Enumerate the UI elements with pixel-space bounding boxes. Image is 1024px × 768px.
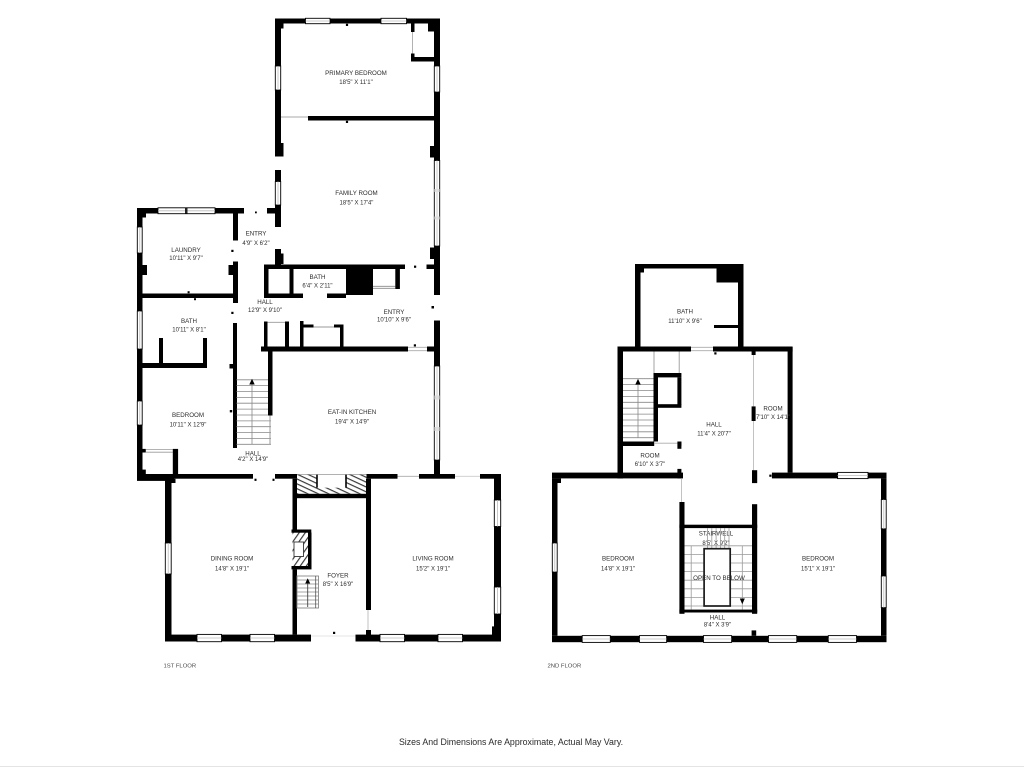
svg-text:HALL: HALL <box>706 422 722 429</box>
svg-text:BATH: BATH <box>181 318 197 325</box>
svg-text:4'9" X 6'2": 4'9" X 6'2" <box>242 241 269 247</box>
svg-text:11'4" X 20'7": 11'4" X 20'7" <box>697 431 730 437</box>
svg-text:FOYER: FOYER <box>327 573 349 580</box>
svg-text:PRIMARY BEDROOM: PRIMARY BEDROOM <box>325 70 387 77</box>
svg-text:ENTRY: ENTRY <box>246 231 267 238</box>
svg-text:18'5" X 17'4": 18'5" X 17'4" <box>340 200 374 206</box>
svg-text:ROOM: ROOM <box>763 406 782 413</box>
svg-text:HALL: HALL <box>257 299 273 306</box>
svg-text:10'10" X 9'6": 10'10" X 9'6" <box>377 317 411 323</box>
svg-text:LIVING ROOM: LIVING ROOM <box>412 556 453 563</box>
svg-text:1ST FLOOR: 1ST FLOOR <box>164 664 197 670</box>
svg-text:11'10" X 9'6": 11'10" X 9'6" <box>668 319 701 325</box>
svg-text:8'5" X 16'9": 8'5" X 16'9" <box>323 582 354 588</box>
svg-text:14'8" X 19'1": 14'8" X 19'1" <box>601 567 635 573</box>
svg-text:OPEN TO BELOW: OPEN TO BELOW <box>693 575 745 582</box>
svg-text:6'10" X 3'7": 6'10" X 3'7" <box>635 462 666 468</box>
svg-text:12'9" X 9'10": 12'9" X 9'10" <box>248 308 282 314</box>
svg-text:7'10" X 14'1": 7'10" X 14'1" <box>756 415 790 421</box>
svg-text:2ND FLOOR: 2ND FLOOR <box>548 664 582 670</box>
svg-text:14'8" X 19'1": 14'8" X 19'1" <box>215 567 249 573</box>
svg-text:8'4" X 3'9": 8'4" X 3'9" <box>704 623 731 629</box>
svg-text:18'5" X 11'1": 18'5" X 11'1" <box>339 80 372 86</box>
svg-text:10'11" X 8'1": 10'11" X 8'1" <box>172 328 205 334</box>
svg-text:ROOM: ROOM <box>640 453 659 460</box>
svg-text:15'1" X 19'1": 15'1" X 19'1" <box>801 567 835 573</box>
svg-text:LAUNDRY: LAUNDRY <box>171 247 200 254</box>
svg-text:DINING ROOM: DINING ROOM <box>211 556 254 563</box>
svg-text:Sizes And Dimensions Are Appro: Sizes And Dimensions Are Approximate, Ac… <box>399 737 623 747</box>
svg-text:FAMILY ROOM: FAMILY ROOM <box>335 190 377 197</box>
svg-text:4'2" X 14'9": 4'2" X 14'9" <box>238 457 269 463</box>
svg-text:19'4" X 14'9": 19'4" X 14'9" <box>335 420 369 426</box>
svg-text:HALL: HALL <box>710 615 726 622</box>
svg-text:6'4" X 2'11": 6'4" X 2'11" <box>302 283 332 289</box>
svg-text:10'11" X 12'9": 10'11" X 12'9" <box>170 423 207 429</box>
svg-text:BEDROOM: BEDROOM <box>602 556 634 563</box>
svg-text:BATH: BATH <box>309 274 325 281</box>
svg-text:10'11" X 9'7": 10'11" X 9'7" <box>169 256 202 262</box>
svg-text:EAT-IN KITCHEN: EAT-IN KITCHEN <box>328 409 376 416</box>
svg-text:BEDROOM: BEDROOM <box>172 412 204 419</box>
svg-text:15'2" X 19'1": 15'2" X 19'1" <box>416 567 450 573</box>
svg-text:ENTRY: ENTRY <box>384 309 405 316</box>
svg-text:BEDROOM: BEDROOM <box>802 556 834 563</box>
svg-text:BATH: BATH <box>677 309 693 316</box>
